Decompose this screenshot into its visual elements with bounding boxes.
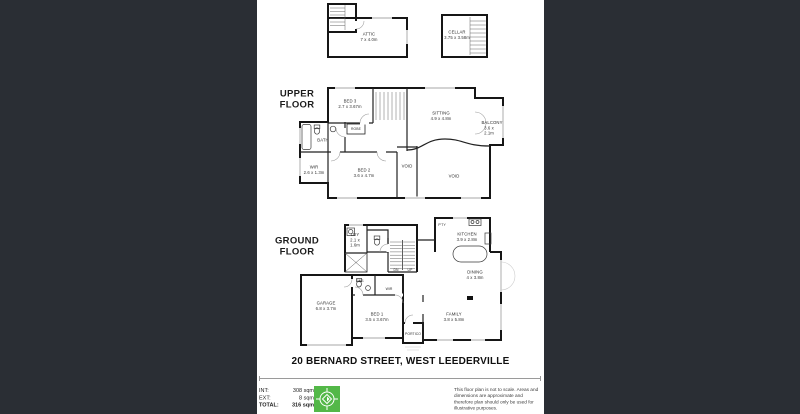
room-label-cellar: CELLAR 3.75 x 3.58m xyxy=(431,24,483,45)
disclaimer-text: This floor plan is not to scale. Areas a… xyxy=(454,387,542,412)
room-dims-bed3: 2.7 x 3.67m xyxy=(338,104,361,109)
room-name-bath: BATH xyxy=(317,137,328,142)
room-label-robe: ROBE xyxy=(344,124,369,135)
backdrop: UPPER FLOOR GROUND FLOOR ATTIC 7 x 4.0m … xyxy=(0,0,800,414)
room-dims-sitting: 4.9 x 4.8m xyxy=(431,116,452,121)
room-name-wir-ground: WIR xyxy=(386,287,393,291)
room-dims-garage: 6.8 x 3.7m xyxy=(316,306,337,311)
room-dims-bed1: 3.5 x 3.67m xyxy=(365,317,388,322)
room-label-bed1: BED 1 3.5 x 3.67m xyxy=(354,306,401,327)
room-label-bath: BATH xyxy=(312,135,335,146)
room-name-ens: ENS xyxy=(356,279,363,283)
ext-value: 8 sqm xyxy=(299,394,314,401)
room-label-ldy: LDY 2.1 x 1.6m xyxy=(340,224,370,256)
room-dims-bed2: 3.6 x 4.7m xyxy=(354,173,375,178)
room-label-void-large: VOID xyxy=(443,171,465,182)
room-label-wir-upper: WIR 2.6 x 1.3m xyxy=(293,159,335,180)
room-name-portico: PORTICO xyxy=(405,332,421,336)
room-label-bed3: BED 3 2.7 x 3.67m xyxy=(327,93,374,114)
property-address: 20 BERNARD STREET, WEST LEEDERVILLE xyxy=(257,356,544,367)
agency-logo xyxy=(314,386,340,412)
room-label-void-small: VOID xyxy=(396,161,418,172)
total-value: 316 sqm xyxy=(292,402,314,409)
room-label-garage: GARAGE 6.8 x 3.7m xyxy=(305,295,347,316)
room-dims-ldy: 2.1 x 1.6m xyxy=(348,237,363,248)
room-dims-kitchen: 3.9 x 2.8m xyxy=(457,237,478,242)
room-dims-attic: 7 x 4.0m xyxy=(360,37,377,42)
room-dims-dining: 4 x 3.8m xyxy=(466,275,483,280)
area-row-int: INT: 308 sqm xyxy=(259,387,314,394)
total-label: TOTAL: xyxy=(259,402,279,409)
area-row-ext: EXT: 8 sqm xyxy=(259,394,314,401)
room-name-robe: ROBE xyxy=(351,127,361,131)
ground-floor-label: GROUND FLOOR xyxy=(273,236,321,259)
room-label-kitchen: KITCHEN 3.9 x 2.8m xyxy=(446,226,488,247)
area-summary: INT: 308 sqm EXT: 8 sqm TOTAL: 316 sqm xyxy=(259,387,314,409)
room-dims-cellar: 3.75 x 3.58m xyxy=(444,35,470,40)
room-label-attic: ATTIC 7 x 4.0m xyxy=(352,26,386,47)
room-label-portico: PORTICO xyxy=(393,329,433,340)
room-dims-wir-upper: 2.6 x 1.3m xyxy=(304,170,325,175)
room-name-void-large: VOID xyxy=(449,173,460,178)
ext-label: EXT: xyxy=(259,394,271,401)
room-name-pty: P'TY xyxy=(438,223,446,227)
int-label: INT: xyxy=(259,387,269,394)
room-dims-balcony: 3.6 x 2.1m xyxy=(482,125,497,136)
stairs-up-label: UP xyxy=(403,265,415,276)
floorplan-page: UPPER FLOOR GROUND FLOOR ATTIC 7 x 4.0m … xyxy=(257,0,544,414)
room-label-dining: DINING 4 x 3.8m xyxy=(458,264,492,285)
room-label-bed2: BED 2 3.6 x 4.7m xyxy=(343,162,385,183)
stairs-up-text: UP xyxy=(407,268,412,272)
int-value: 308 sqm xyxy=(293,387,314,394)
room-label-wir-ground: WIR xyxy=(380,284,397,295)
room-name-void-small: VOID xyxy=(402,163,413,168)
room-dims-family: 3.8 x 5.8m xyxy=(444,317,465,322)
upper-floor-label: UPPER FLOOR xyxy=(273,89,321,112)
room-label-ens: ENS xyxy=(351,276,369,287)
room-label-family: FAMILY 3.8 x 5.8m xyxy=(433,306,475,327)
floorplan-drawing xyxy=(257,0,544,414)
stairs-dn-text: DN xyxy=(393,268,398,272)
stairs-down-label: DN xyxy=(390,265,403,276)
area-row-total: TOTAL: 316 sqm xyxy=(259,402,314,409)
divider-rule xyxy=(259,378,541,379)
room-label-balcony: BALCONY 3.6 x 2.1m xyxy=(474,112,504,144)
room-label-sitting: SITTING 4.9 x 4.8m xyxy=(420,105,462,126)
